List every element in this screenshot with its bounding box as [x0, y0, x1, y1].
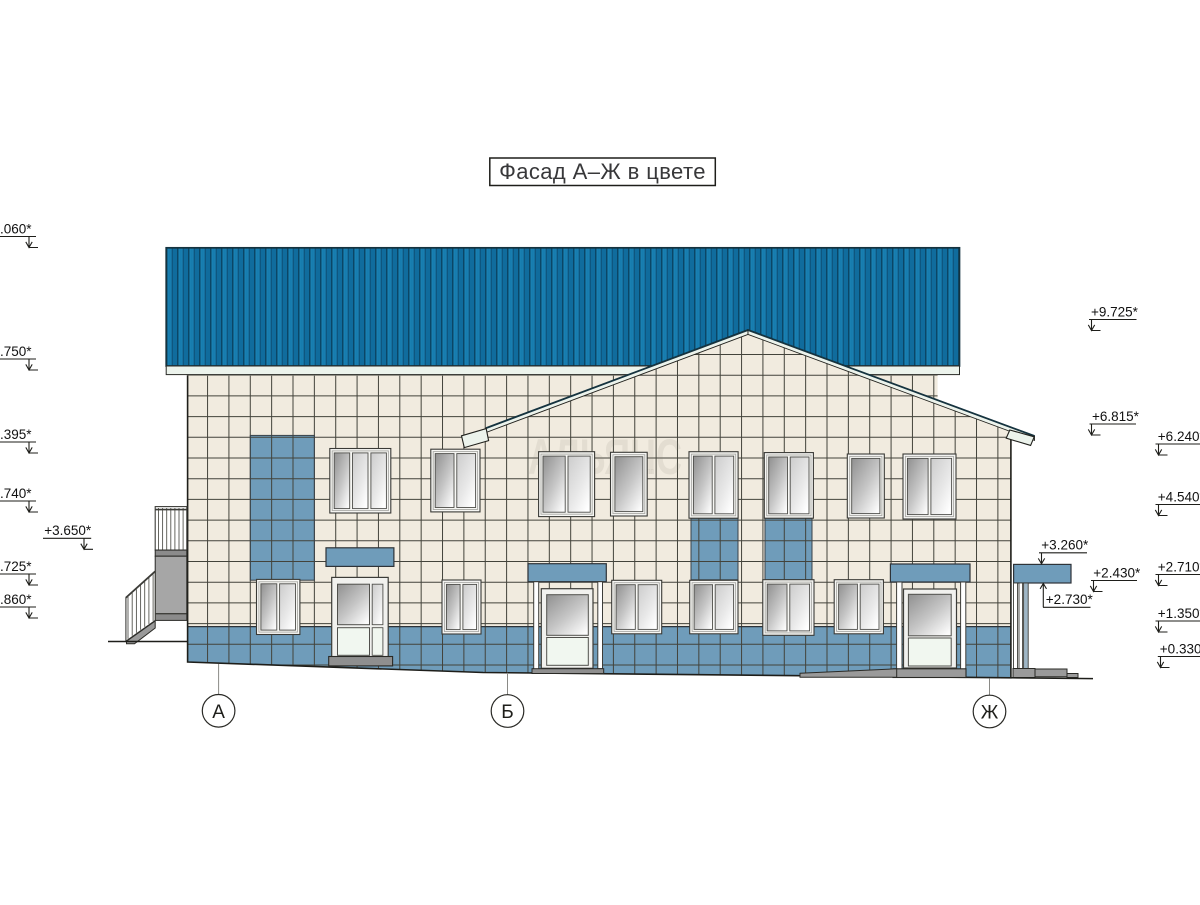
svg-text:+3.650*: +3.650*	[44, 523, 92, 538]
svg-text:+6.395*: +6.395*	[0, 427, 32, 442]
svg-text:А: А	[212, 702, 225, 723]
svg-text:+11.060*: +11.060*	[0, 222, 32, 237]
svg-text:+1.860*: +1.860*	[0, 592, 32, 607]
svg-text:+2.730*: +2.730*	[1046, 592, 1094, 607]
svg-text:+9.725*: +9.725*	[1091, 305, 1139, 320]
svg-text:+2.725*: +2.725*	[0, 559, 32, 574]
svg-text:Ж: Ж	[981, 703, 999, 724]
svg-text:+2.710*: +2.710*	[1158, 560, 1200, 575]
svg-text:+2.430*: +2.430*	[1093, 566, 1141, 581]
svg-text:+0.330*: +0.330*	[1160, 642, 1200, 657]
svg-text:+6.240*: +6.240*	[1158, 429, 1200, 444]
svg-text:+4.740*: +4.740*	[0, 486, 32, 501]
svg-text:+4.540*: +4.540*	[1158, 490, 1200, 505]
svg-text:Б: Б	[501, 702, 513, 723]
svg-text:+8.750*: +8.750*	[0, 344, 32, 359]
svg-text:+6.815*: +6.815*	[1092, 409, 1140, 424]
svg-text:Фасад А–Ж в цвете: Фасад А–Ж в цвете	[499, 159, 706, 184]
svg-text:+1.350*: +1.350*	[1158, 606, 1200, 621]
svg-text:+3.260*: +3.260*	[1041, 538, 1089, 553]
